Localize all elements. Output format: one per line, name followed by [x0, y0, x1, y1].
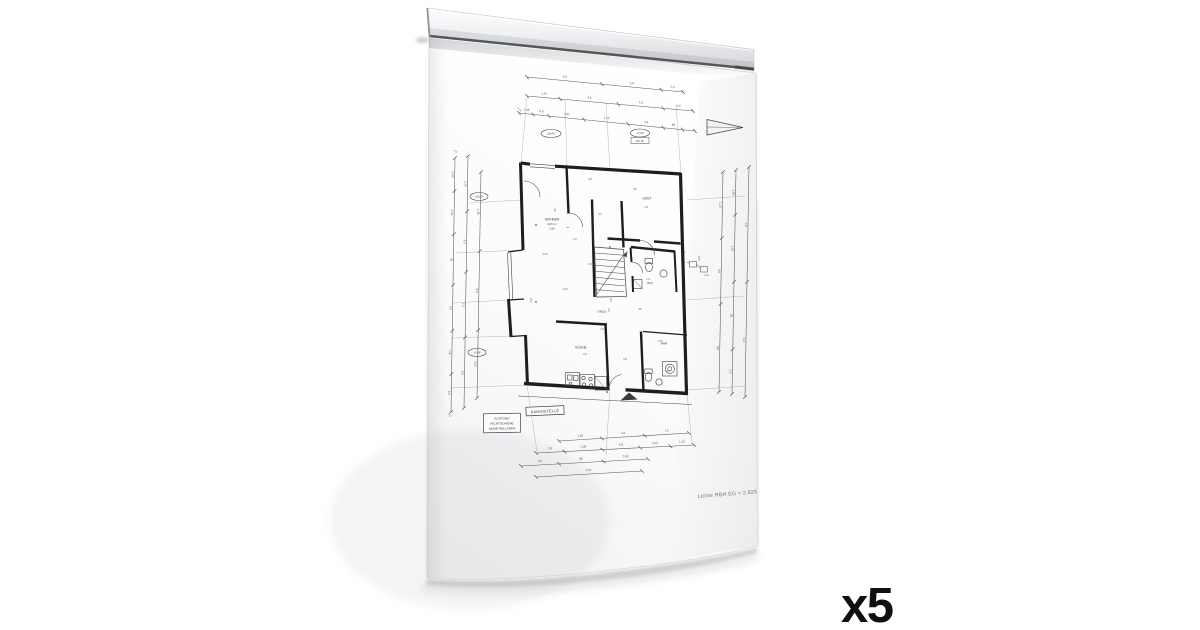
quantity-label: x5 — [841, 579, 893, 630]
dim-label: 1,01 — [450, 210, 454, 216]
rail-tip-shadow — [416, 37, 429, 43]
room-label-wohnen: WOHNEN — [545, 218, 560, 222]
dim-label: 4,5 — [587, 95, 592, 99]
room-label-wohnen-height: 2,50 — [549, 227, 555, 231]
dim-label: 2,63 — [542, 252, 548, 256]
kamin-box: KAMINSTELLE — [526, 406, 564, 416]
dim-label: 4,5 — [463, 240, 467, 245]
dim-label: 1,38 — [523, 107, 530, 112]
dim-label: 1,13 — [679, 439, 685, 443]
room-label-hwr: HWR — [661, 342, 668, 346]
dim-label: 1,5 — [639, 100, 644, 104]
dim-label: 2,6 — [548, 446, 553, 450]
paper-bottom-inner-shade — [330, 430, 610, 610]
dim-label: 1,01 — [586, 468, 592, 472]
dim-label: 3,8 — [538, 459, 543, 463]
dim-label: 1,5 — [462, 303, 466, 308]
room-label-diele: DIELE — [598, 310, 607, 314]
room-label-wohnen-area: 20,5 m² — [547, 222, 556, 226]
note-box-line: OHNE ROLLADEN — [489, 426, 516, 430]
dim-label: 2,0 — [588, 262, 592, 266]
dim-label: 3,8 — [717, 269, 721, 274]
paper-sheet — [330, 33, 758, 610]
dim-label: 88 — [716, 346, 720, 350]
dim-label: 5,8 — [539, 109, 544, 113]
dim-label: 2,0 — [573, 237, 577, 241]
dim-label: 2,0 — [447, 391, 451, 396]
under-oval-label: OK FF — [636, 139, 645, 143]
room-label-gast: GAST — [643, 197, 652, 201]
dim-label: 1,25 — [562, 287, 568, 291]
room-label-bad: BAD — [647, 281, 652, 285]
dim-label: 3,5 — [598, 212, 602, 216]
dim-label: 36 — [449, 258, 453, 262]
dim-label: 88 — [579, 457, 583, 461]
dim-label: 2,63 — [732, 189, 736, 195]
dim-label: 2,6 — [583, 352, 587, 356]
dim-label: 5,8 — [623, 357, 627, 361]
dim-label: 4,5 — [607, 308, 611, 312]
dim-label: 3,5 — [666, 369, 670, 373]
dim-label: 1,8 — [644, 205, 648, 209]
dim-label: 1,38 — [476, 209, 480, 215]
dim-label: 5,8 — [619, 443, 624, 447]
dim-label: 1,13 — [703, 273, 709, 277]
room-label-kueche: KÜCHE — [575, 346, 587, 350]
dim-label: 1,25 — [464, 181, 468, 187]
dim-label: 3,5 — [563, 74, 568, 78]
dim-label: 3,5 — [449, 306, 453, 311]
dim-label: 2,63 — [451, 172, 455, 178]
dim-label: 1,25 — [541, 91, 548, 96]
dim-label: 1,8 — [448, 350, 452, 355]
dim-label: 2,6 — [461, 371, 465, 376]
dim-label: 1,8 — [744, 222, 748, 227]
dim-label: 5,8 — [475, 288, 479, 293]
product-photo: 3,51,82,01,254,51,52,61,385,82,011,133,8… — [0, 0, 1200, 630]
dim-label: 2,63 — [623, 454, 629, 458]
dim-label: 1,38 — [580, 444, 586, 448]
dim-label: 1,13 — [603, 116, 610, 121]
dim-label: 3,8 — [588, 177, 592, 181]
dim-label: 2,01 — [697, 255, 701, 261]
dim-label: 2,6 — [609, 298, 613, 302]
dim-label: 1,8 — [630, 81, 635, 85]
dim-label: 1,01 — [529, 297, 533, 303]
dim-label: 1,13 — [718, 202, 722, 208]
level-oval-label: ±0,00 — [547, 132, 555, 136]
dim-label: 3,5 — [728, 369, 732, 374]
note-box-line: ACHTUNG — [494, 416, 510, 420]
dim-label: 2,0 — [670, 85, 675, 89]
level-oval-label: ±0,00 — [475, 195, 483, 199]
note-box: ACHTUNG RICHTSCHIENE OHNE ROLLADEN — [483, 413, 520, 433]
dim-label: 36 — [729, 314, 733, 318]
dim-label: 1,5 — [664, 428, 669, 432]
dim-label: 2,01 — [652, 441, 658, 445]
dim-label: 1,01 — [731, 245, 735, 251]
dim-label: 2,01 — [564, 112, 571, 117]
level-oval-label: -0,30 — [637, 131, 644, 135]
dim-label: 2,6 — [676, 103, 681, 107]
dim-label: 4,5 — [621, 431, 626, 435]
dim-label: 1,25 — [577, 433, 583, 437]
dim-label: 2,01 — [474, 361, 478, 367]
scene: 3,51,82,01,254,51,52,61,385,82,011,133,8… — [0, 0, 1200, 630]
note-box-line: RICHTSCHIENE — [490, 421, 513, 425]
dim-label: 1,8 — [600, 327, 604, 331]
dim-label: 2,0 — [742, 337, 746, 342]
dim-label: 3,8 — [644, 120, 649, 124]
dim-label: 1,5 — [646, 277, 650, 281]
level-oval-label: -0,38 — [474, 351, 481, 355]
